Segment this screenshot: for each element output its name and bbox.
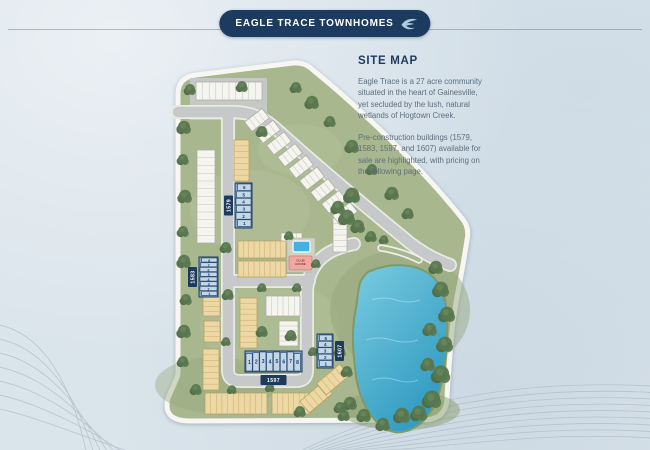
svg-text:8: 8 (208, 259, 210, 263)
svg-text:1607: 1607 (337, 344, 343, 357)
svg-text:5: 5 (325, 336, 328, 341)
svg-text:5: 5 (243, 192, 246, 197)
pool (293, 241, 310, 252)
building-garage-row (196, 82, 262, 100)
building-tag-1579: 1579 (224, 196, 233, 216)
svg-text:6: 6 (208, 268, 210, 272)
building-tag-1607: 1607 (335, 341, 344, 361)
building-tan (238, 241, 286, 258)
svg-text:1: 1 (325, 361, 328, 366)
svg-text:3: 3 (243, 207, 246, 212)
brochure-page: EAGLE TRACE TOWNHOMES SITE MAP Eagle Tra… (0, 0, 650, 450)
svg-text:5: 5 (208, 273, 210, 277)
svg-text:3: 3 (208, 283, 210, 287)
building-west-row (197, 150, 215, 243)
info-panel: SITE MAP Eagle Trace is a 27 acre commun… (358, 55, 484, 188)
svg-text:1: 1 (248, 360, 251, 366)
svg-text:1: 1 (243, 221, 246, 226)
building-center (266, 296, 300, 316)
svg-text:1597: 1597 (267, 378, 280, 384)
site-map-heading: SITE MAP (358, 55, 484, 67)
svg-text:3: 3 (262, 359, 265, 365)
svg-text:2: 2 (255, 359, 258, 365)
svg-text:7: 7 (208, 264, 210, 268)
availability-note: Pre-construction buildings (1579, 1583, … (358, 132, 484, 177)
building-tan (240, 298, 257, 348)
svg-text:1: 1 (208, 292, 210, 296)
svg-text:6: 6 (282, 359, 285, 365)
building-tan (238, 261, 286, 277)
svg-text:4: 4 (208, 278, 210, 282)
clubhouse: CLUBHOUSE (289, 256, 312, 270)
building-tag-1597: 1597 (261, 375, 287, 385)
svg-text:8: 8 (296, 360, 299, 366)
building-tan (204, 321, 220, 342)
banner-title: EAGLE TRACE TOWNHOMES (235, 18, 393, 29)
site-map: CLUBHOUSE6543211579876543211583123456781… (0, 0, 650, 450)
svg-text:1583: 1583 (190, 270, 196, 283)
title-banner: EAGLE TRACE TOWNHOMES (219, 10, 430, 37)
svg-text:1579: 1579 (226, 199, 232, 212)
site-description: Eagle Trace is a 27 acre community situa… (358, 76, 484, 121)
svg-text:6: 6 (243, 185, 246, 190)
svg-text:7: 7 (289, 359, 292, 365)
building-tan (203, 349, 219, 390)
svg-text:4: 4 (324, 342, 327, 347)
svg-text:4: 4 (269, 359, 272, 365)
building-tan (203, 297, 220, 316)
building-tag-1583: 1583 (188, 267, 197, 287)
svg-text:4: 4 (242, 200, 245, 205)
building-tan (205, 393, 267, 414)
building-tan (234, 140, 249, 181)
svg-text:5: 5 (276, 359, 279, 365)
eagle-icon (401, 17, 419, 31)
svg-text:3: 3 (324, 349, 327, 354)
amenity-area: CLUBHOUSE (287, 238, 315, 272)
svg-text:2: 2 (242, 214, 245, 219)
svg-text:2: 2 (324, 355, 327, 360)
svg-text:HOUSE: HOUSE (295, 262, 306, 266)
svg-text:2: 2 (208, 287, 210, 291)
